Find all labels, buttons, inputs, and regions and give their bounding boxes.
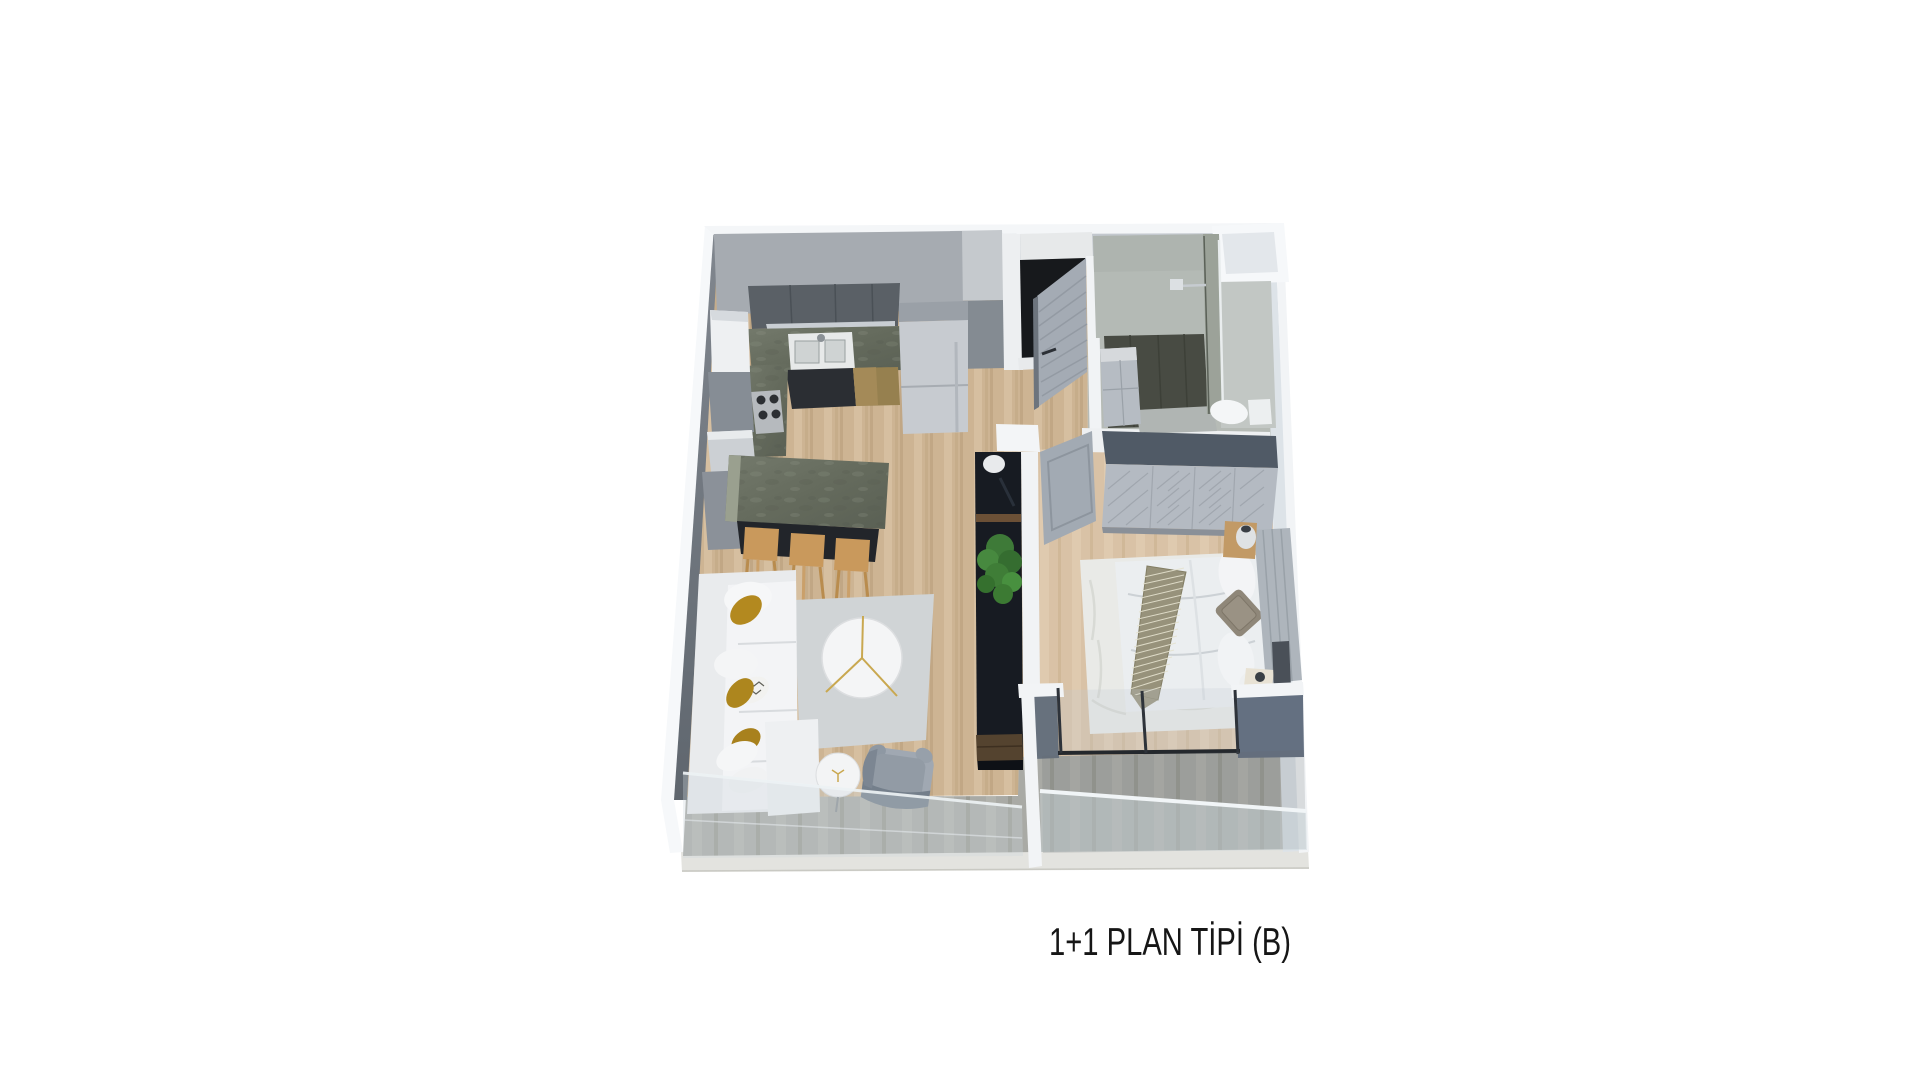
svg-text:1+1 PLAN TİPİ (B): 1+1 PLAN TİPİ (B) (1049, 921, 1291, 964)
